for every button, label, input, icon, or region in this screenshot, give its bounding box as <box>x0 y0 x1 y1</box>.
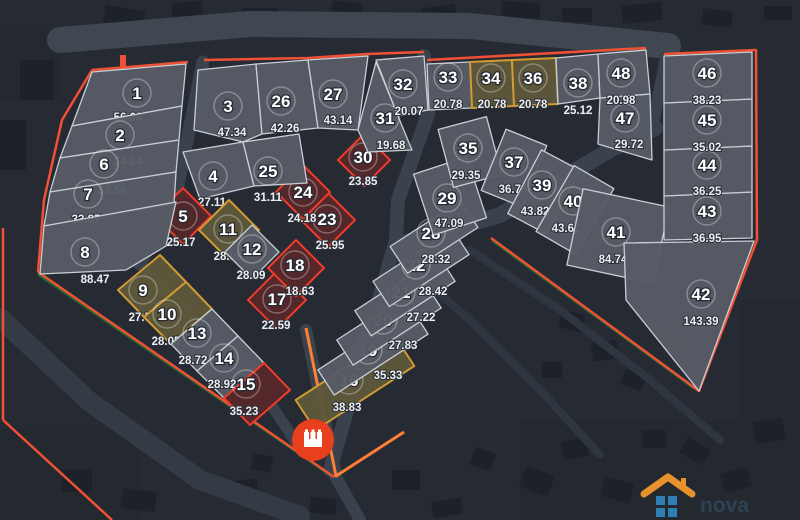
plot-area-label: 84.74 <box>599 254 628 266</box>
house-footprint <box>753 418 786 444</box>
plot-area-label: 29.72 <box>615 139 644 151</box>
entrance-tick <box>120 55 126 70</box>
plot-number: 3 <box>223 97 232 116</box>
plot-number: 29 <box>438 189 457 208</box>
plot-area-label: 29.35 <box>452 170 481 182</box>
house-footprint <box>642 430 666 448</box>
plot-number: 12 <box>243 240 262 259</box>
house-footprint <box>309 497 337 516</box>
house-footprint <box>562 8 592 22</box>
plot-45[interactable]: 4535.02 <box>664 99 752 154</box>
plot-number: 5 <box>178 207 187 226</box>
plot-area-label: 27.22 <box>407 312 436 324</box>
plot-number: 17 <box>268 290 287 309</box>
plot-number: 47 <box>616 109 635 128</box>
plot-area-label: 27.83 <box>389 340 418 352</box>
plot-area-label: 18.63 <box>286 286 315 298</box>
plot-area-label: 42.26 <box>271 123 300 135</box>
plot-26[interactable]: 2642.26 <box>256 60 318 135</box>
house-footprint <box>764 6 792 20</box>
plot-27[interactable]: 2743.14 <box>308 56 368 130</box>
plot-area-label: 38.23 <box>693 95 722 107</box>
plot-area-label: 25.12 <box>564 105 593 117</box>
plot-number: 39 <box>533 176 552 195</box>
plot-area-label: 24.18 <box>288 213 317 225</box>
plot-number: 27 <box>324 85 343 104</box>
plot-number: 48 <box>612 64 631 83</box>
house-footprint <box>542 362 562 378</box>
plot-area-label: 25.17 <box>167 237 196 249</box>
plot-number: 25 <box>259 162 278 181</box>
plot-area-label: 23.85 <box>349 176 378 188</box>
plot-number: 11 <box>219 220 237 239</box>
plot-number: 41 <box>607 223 626 242</box>
house-footprint <box>392 470 420 490</box>
plot-number: 42 <box>692 285 711 304</box>
plot-area-label: 35.02 <box>693 142 722 154</box>
logo-square <box>656 496 665 505</box>
plot-number: 43 <box>698 202 717 221</box>
plot-number: 24 <box>294 183 313 202</box>
plot-area-label: 28.32 <box>422 254 451 266</box>
plot-area-label: 22.59 <box>262 320 291 332</box>
castle-icon <box>304 430 322 448</box>
plot-number: 31 <box>376 109 395 128</box>
plot-number: 18 <box>286 256 305 275</box>
plot-number: 37 <box>505 153 524 172</box>
plot-area-label: 88.47 <box>81 274 110 286</box>
logo-square <box>668 496 677 505</box>
plot-number: 2 <box>115 126 124 145</box>
plot-number: 33 <box>439 68 458 87</box>
logo-square <box>656 508 665 517</box>
plot-number: 9 <box>138 281 147 300</box>
plot-number: 15 <box>237 375 256 394</box>
plot-number: 8 <box>80 243 89 262</box>
plot-area-label: 28.42 <box>419 286 448 298</box>
location-marker[interactable] <box>292 419 334 461</box>
plot-area-label: 20.78 <box>434 99 463 111</box>
house-footprint <box>171 1 202 18</box>
plot-number: 13 <box>188 324 207 343</box>
plot-43[interactable]: 4336.95 <box>664 192 752 245</box>
house-footprint <box>20 60 54 100</box>
plot-number: 6 <box>99 155 108 174</box>
plot-area-label: 20.78 <box>519 99 548 111</box>
plot-number: 38 <box>569 74 588 93</box>
plot-33[interactable]: 3320.78 <box>427 62 472 111</box>
house-footprint <box>0 120 26 170</box>
plot-area-label: 36.95 <box>693 233 722 245</box>
plot-number: 34 <box>482 69 501 88</box>
plot-number: 7 <box>83 185 92 204</box>
plot-area-label: 31.11 <box>254 192 283 204</box>
plot-area-label: 20.98 <box>607 95 636 107</box>
plot-area-label: 19.68 <box>377 140 406 152</box>
plot-number: 4 <box>208 167 218 186</box>
plot-number: 14 <box>215 349 234 368</box>
logo-square <box>668 508 677 517</box>
plot-number: 23 <box>318 210 337 229</box>
plot-area-label: 143.39 <box>683 316 718 328</box>
plot-area-label: 35.33 <box>374 370 403 382</box>
plot-3[interactable]: 347.34 <box>194 64 262 142</box>
plot-area-label: 20.78 <box>478 99 507 111</box>
plot-area-label: 47.34 <box>218 127 247 139</box>
house-footprint <box>501 1 540 20</box>
plot-number: 26 <box>272 92 291 111</box>
plot-area-label: 25.95 <box>316 240 345 252</box>
plot-34[interactable]: 3420.78 <box>470 60 514 111</box>
plot-number: 46 <box>698 64 717 83</box>
logo-wordmark: nova <box>700 494 749 517</box>
plot-area-label: 43.14 <box>324 115 353 127</box>
plot-number: 1 <box>132 84 141 103</box>
plot-number: 32 <box>394 75 413 94</box>
estate-map-screenshot: 156.00224.84347.34427.11525.17633.50733.… <box>0 0 800 520</box>
plot-area-label: 28.09 <box>237 270 266 282</box>
plot-area-label: 35.23 <box>230 406 259 418</box>
plot-area-label: 36.25 <box>693 186 722 198</box>
plot-number: 45 <box>698 111 717 130</box>
plot-number: 10 <box>158 305 177 324</box>
plot-area-label: 38.83 <box>333 402 362 414</box>
plot-area-label: 47.09 <box>435 218 464 230</box>
plot-number: 44 <box>698 156 717 175</box>
plot-46[interactable]: 4638.23 <box>664 52 752 107</box>
plot-number: 36 <box>524 69 543 88</box>
plot-36[interactable]: 3620.78 <box>512 58 558 111</box>
plot-number: 35 <box>459 139 478 158</box>
estate-map: 156.00224.84347.34427.11525.17633.50733.… <box>0 0 800 520</box>
plot-area-label: 20.07 <box>395 106 424 118</box>
